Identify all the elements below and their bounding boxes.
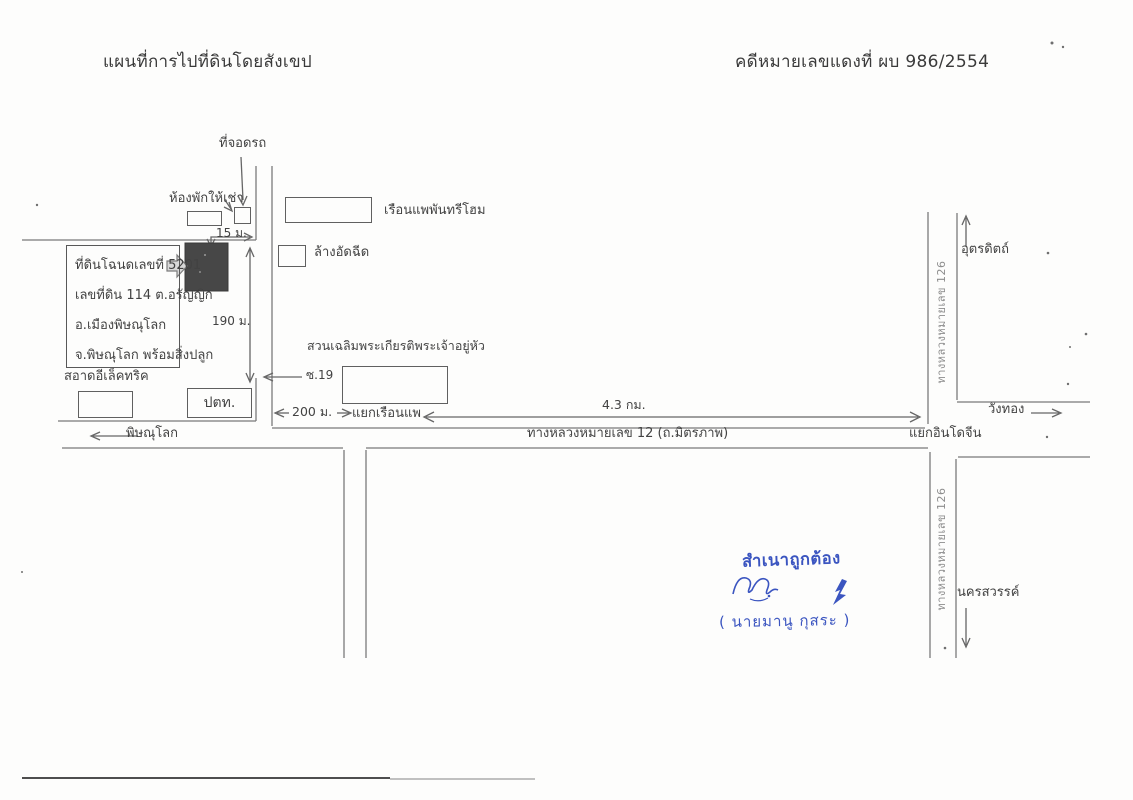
distance200-label: 200 ม.	[292, 404, 332, 419]
uttaradit-label: อุตรดิตถ์	[961, 242, 1009, 258]
raft-house-label: เรือนแพพันทรีโฮม	[384, 203, 486, 219]
parking-label: ที่จอดรถ	[219, 136, 266, 152]
page-title: แผนที่การไปที่ดินโดยสังเขป	[103, 52, 312, 72]
car-wash-box	[278, 245, 306, 267]
highway126-upper-label: ทางหลวงหมายเลข 126	[933, 247, 949, 397]
map-sketch	[0, 0, 1133, 800]
soi19-label: ซ.19	[306, 368, 333, 382]
frontage-measure-label: 15 ม.	[216, 226, 247, 240]
gas-station-label: ปตท.	[204, 392, 236, 414]
distance43km-label: 4.3 กม.	[597, 395, 651, 415]
land-info-line: จ.พิษณุโลก พร้อมสิ่งปลูก	[75, 344, 179, 374]
scanned-map-document: แผนที่การไปที่ดินโดยสังเขป คดีหมายเลขแดง…	[0, 0, 1133, 800]
car-wash-label: ล้างอัดฉีด	[314, 245, 369, 261]
land-info-line: อ.เมืองพิษณุโลก	[75, 314, 179, 344]
royal-park-label: สวนเฉลิมพระเกียรติพระเจ้าอยู่หัว	[307, 338, 485, 353]
royal-park-box	[342, 366, 448, 404]
roads	[22, 166, 1090, 658]
depth-measure-label: 190 ม.	[212, 314, 250, 328]
stamp-signature	[733, 578, 778, 601]
nakhonsawan-arrow	[962, 608, 970, 647]
road-below-center	[344, 450, 366, 658]
parking-box	[234, 207, 251, 224]
case-number: คดีหมายเลขแดงที่ ผบ 986/2554	[735, 52, 989, 72]
land-info-box: ที่ดินโฉนดเลขที่ 5201 เลขที่ดิน 114 ต.อร…	[66, 245, 180, 368]
stamp-name-text: ( นายมานู กุสระ )	[719, 608, 851, 634]
electric-shop-box	[78, 391, 133, 418]
rooms-box	[187, 211, 222, 226]
indochina-junction-label: แยกอินโดจีน	[909, 426, 982, 442]
highway12-label: ทางหลวงหมายเลข 12 (ถ.มิตรภาพ)	[527, 426, 728, 442]
soi19-arrow	[264, 373, 302, 381]
raft-junction-label: แยกเรือนแพ	[352, 406, 421, 422]
land-info-line: เลขที่ดิน 114 ต.อรัญญิก	[75, 284, 179, 314]
stamp-pen-mark	[833, 579, 847, 605]
phitsanulok-label: พิษณุโลก	[126, 426, 178, 442]
scan-edge-line	[22, 778, 535, 779]
highway126-lower-label: ทางหลวงหมายเลข 126	[933, 474, 949, 624]
wangthong-arrow	[1031, 409, 1061, 417]
wangthong-label: วังทอง	[988, 402, 1024, 418]
gas-station-box: ปตท.	[187, 388, 252, 418]
raft-house-box	[285, 197, 372, 223]
rooms-for-rent-label: ห้องพักให้เช่า	[169, 191, 244, 207]
plot-speck	[204, 254, 206, 256]
land-info-line: ที่ดินโฉนดเลขที่ 5201	[75, 254, 179, 284]
nakhonsawan-label: นครสวรรค์	[957, 585, 1019, 601]
stamp-certified-text: สำเนาถูกต้อง	[742, 545, 842, 574]
distance43km-arrow	[424, 412, 920, 422]
